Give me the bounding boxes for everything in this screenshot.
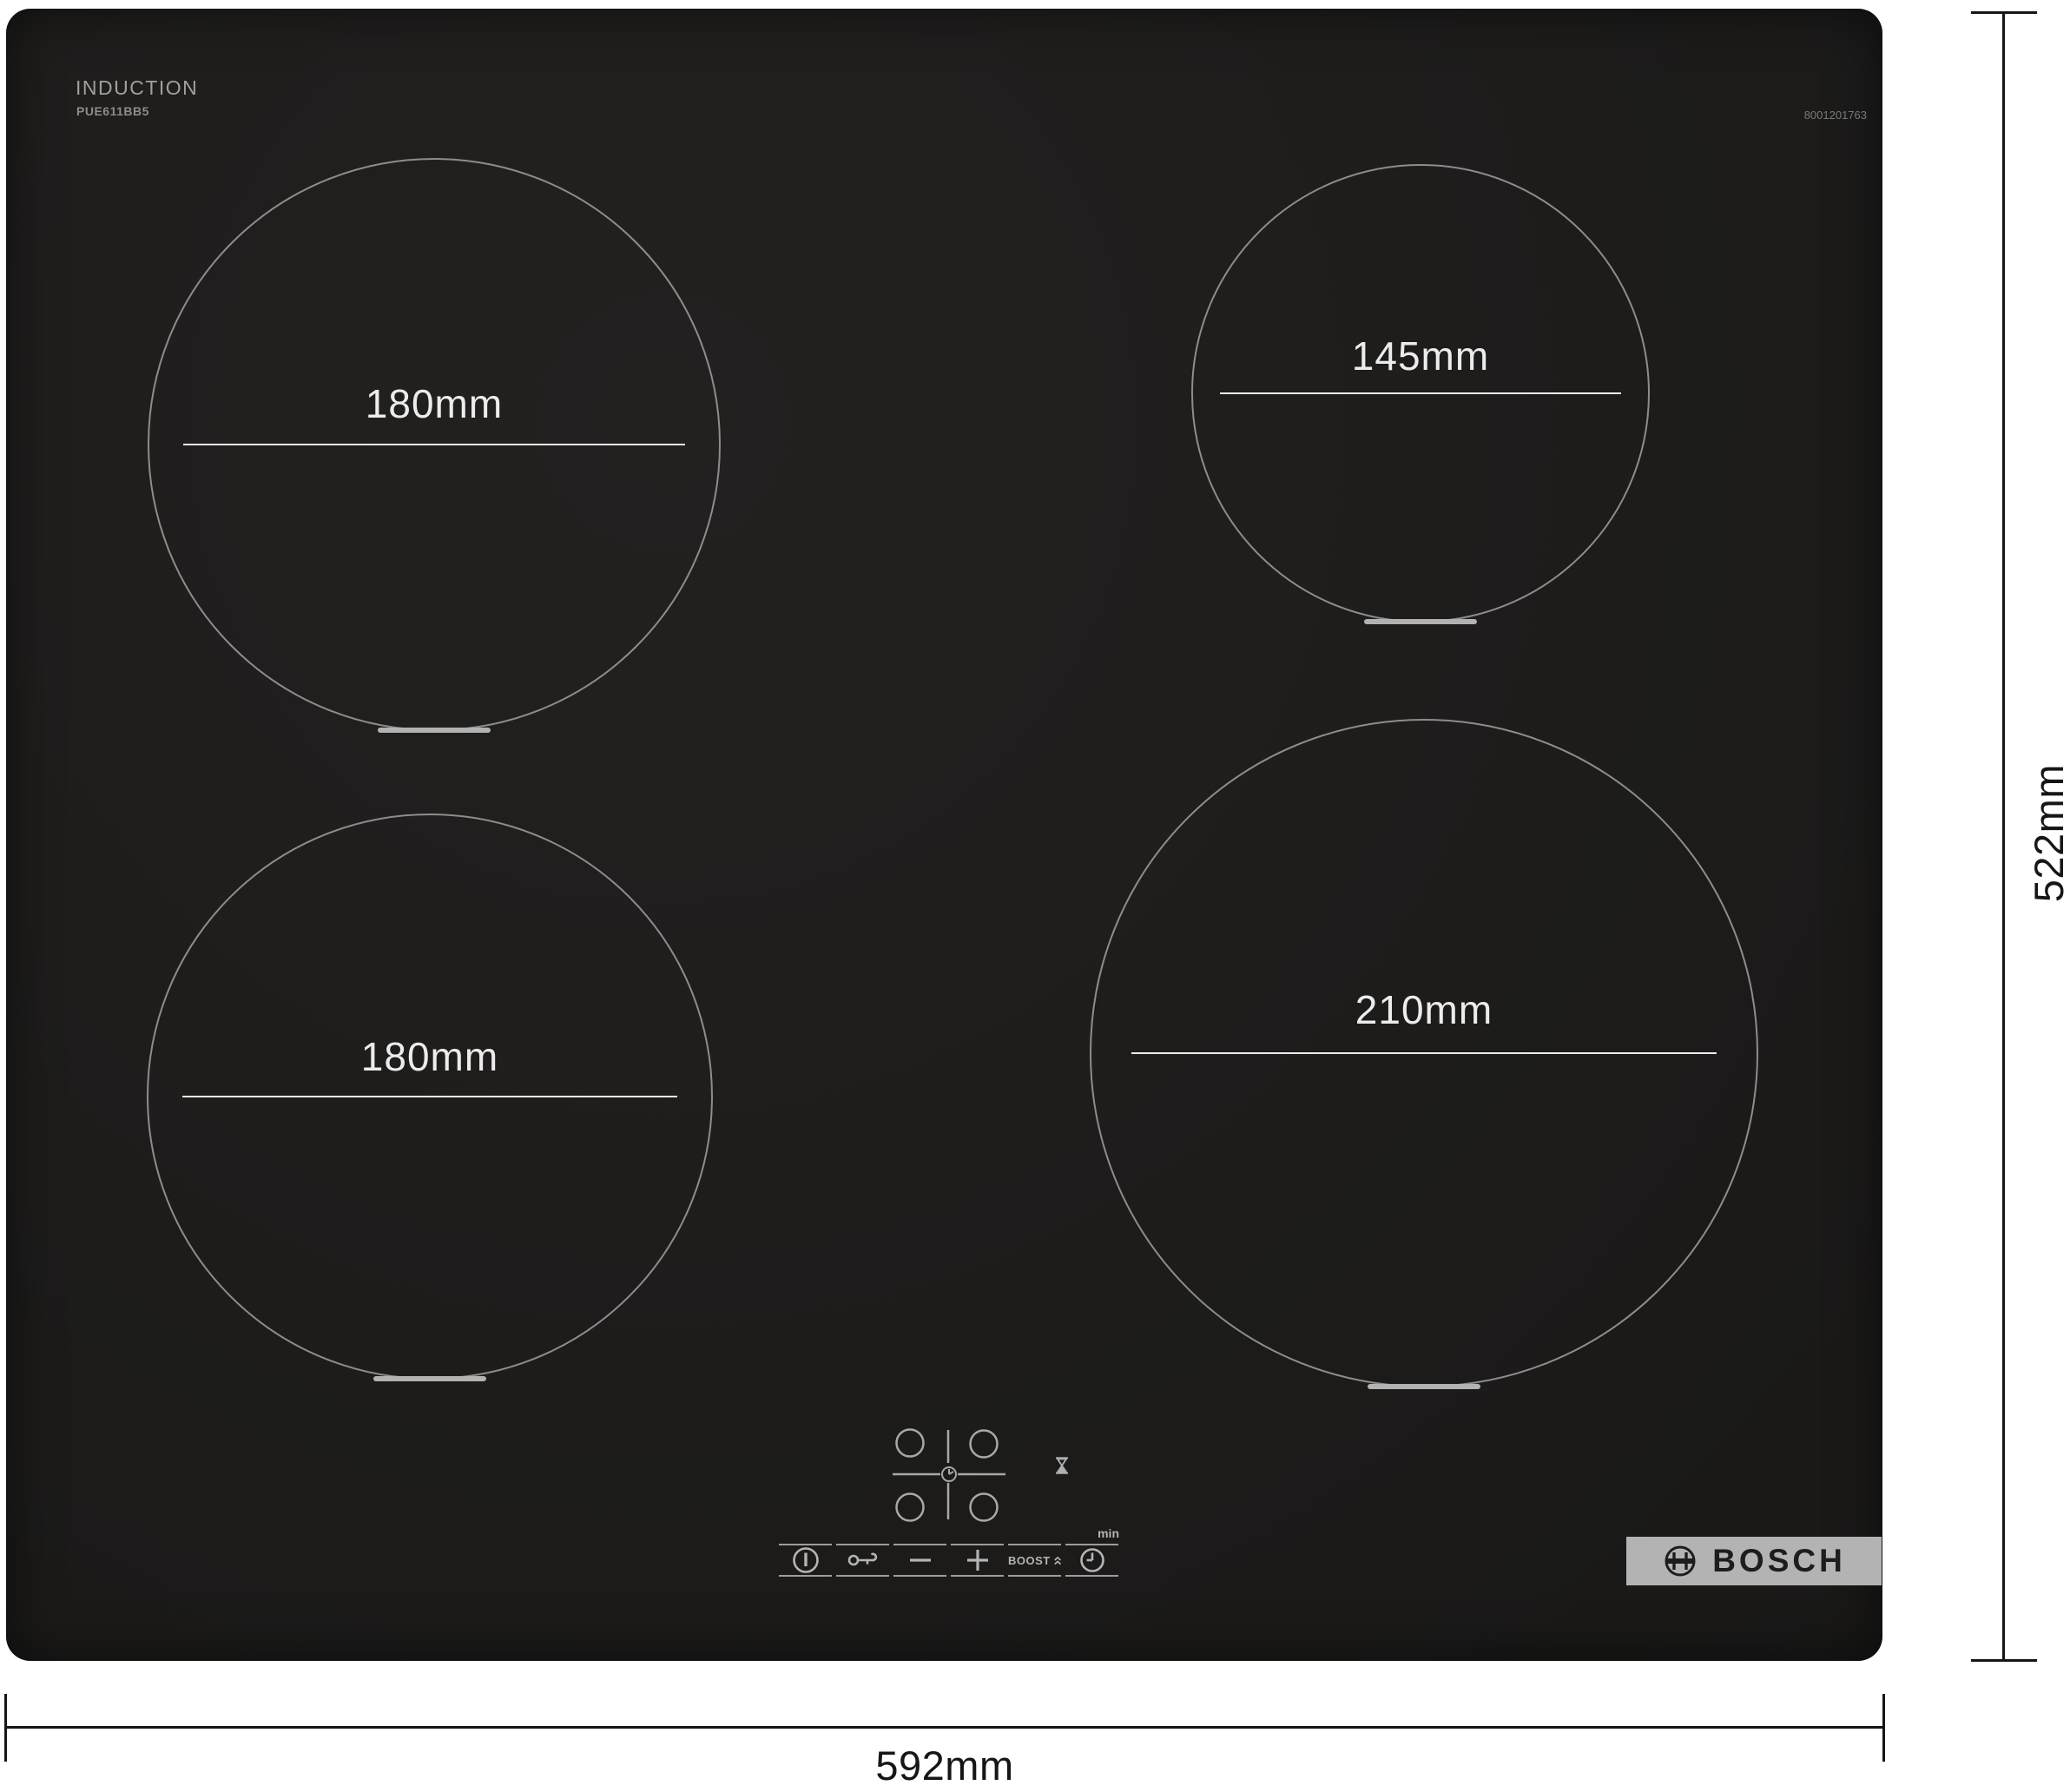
depth-dimension-tick-bottom: [1971, 1659, 2037, 1662]
zone-alignment-notch: [373, 1376, 486, 1381]
clock-icon: [1079, 1547, 1105, 1573]
timer-key: [1065, 1544, 1118, 1577]
timer-minutes-label: min: [1083, 1526, 1119, 1540]
boost-key-label: BOOST: [1008, 1554, 1051, 1567]
key-icon: [846, 1551, 880, 1570]
depth-dimension-label: 522mm: [2025, 764, 2070, 902]
cooking-zone-front-left: 180mm: [147, 814, 713, 1380]
hob-part-number: 8001201763: [1804, 109, 1867, 122]
zone-diameter-line: [1131, 1052, 1717, 1055]
hob-title: INDUCTION: [76, 76, 198, 100]
bosch-logo-plate: BOSCH: [1626, 1537, 1882, 1585]
bosch-logo-text: BOSCH: [1712, 1543, 1846, 1579]
increase-key: [951, 1544, 1004, 1577]
power-icon: [791, 1545, 821, 1575]
width-dimension-line: [5, 1726, 1884, 1729]
zone-selector-icon: [883, 1417, 1013, 1534]
zone-diameter-line: [182, 1096, 677, 1098]
child-lock-key: [836, 1544, 889, 1577]
decrease-key: [893, 1544, 946, 1577]
zone-diameter-label: 180mm: [148, 1033, 711, 1080]
zone-diameter-label: 145mm: [1193, 333, 1648, 379]
page: { "header": { "title": "INDUCTION", "mod…: [0, 0, 2070, 1792]
zone-alignment-notch: [1368, 1384, 1480, 1389]
bosch-anchor-icon: [1662, 1543, 1698, 1579]
minus-icon: [908, 1548, 933, 1572]
cooking-zone-rear-right: 145mm: [1191, 164, 1650, 623]
depth-dimension-tick-top: [1971, 11, 2037, 14]
hob-model-number: PUE611BB5: [76, 104, 149, 118]
zone-alignment-notch: [378, 728, 491, 733]
cooking-zone-front-right: 210mm: [1090, 719, 1758, 1387]
hob-surface: INDUCTION PUE611BB5 8001201763 180mm 145…: [6, 9, 1882, 1661]
zone-alignment-notch: [1364, 619, 1477, 624]
width-dimension-label: 592mm: [0, 1742, 1889, 1789]
zone-diameter-line: [183, 444, 684, 446]
zone-diameter-label: 180mm: [149, 380, 719, 427]
double-chevron-up-icon: [1054, 1552, 1061, 1569]
power-key: [779, 1544, 832, 1577]
touch-control-strip: BOOST: [779, 1544, 1118, 1577]
zone-diameter-line: [1220, 392, 1620, 395]
zone-diameter-label: 210mm: [1091, 986, 1757, 1033]
plus-icon: [966, 1548, 990, 1572]
depth-dimension-line: [2002, 12, 2005, 1662]
residual-heat-hourglass-icon: [1055, 1457, 1069, 1474]
boost-key: BOOST: [1008, 1544, 1061, 1577]
cooking-zone-rear-left: 180mm: [148, 158, 721, 731]
